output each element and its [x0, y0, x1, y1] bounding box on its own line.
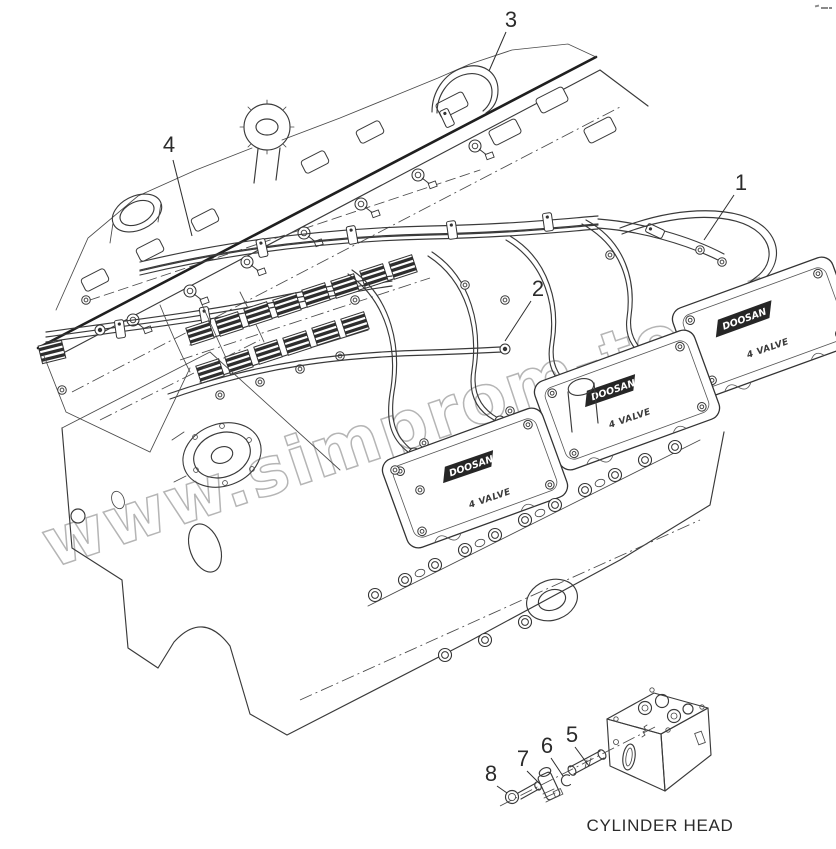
callout-5: 5: [566, 722, 578, 747]
callout-7: 7: [517, 746, 529, 771]
rocker-pads: [80, 86, 617, 292]
callout-6: 6: [541, 733, 553, 758]
part-bolt: [506, 781, 543, 804]
exploded-detail: [500, 688, 711, 806]
part-holder: [537, 766, 563, 802]
figure-caption: CYLINDER HEAD: [586, 816, 733, 835]
parts-diagram-page: www.simprom-too.kz: [0, 0, 836, 849]
upper-silhouette: [56, 44, 596, 310]
leader-4: [173, 160, 192, 236]
callout-4: 4: [163, 132, 175, 157]
leader-2: [505, 301, 531, 341]
part-snap-ring: [561, 775, 570, 786]
corner-artifact: [815, 5, 832, 9]
callout-8: 8: [485, 761, 497, 786]
callout-1: 1: [735, 170, 747, 195]
callout-2: 2: [532, 276, 544, 301]
leader-6: [551, 758, 563, 776]
oil-filler-cap: [240, 100, 294, 183]
engine-diagram-svg: www.simprom-too.kz: [0, 0, 836, 849]
leader-8: [497, 786, 507, 793]
callout-3: 3: [505, 7, 517, 32]
leader-3: [489, 32, 506, 71]
cylinder-head-block: [607, 688, 711, 791]
